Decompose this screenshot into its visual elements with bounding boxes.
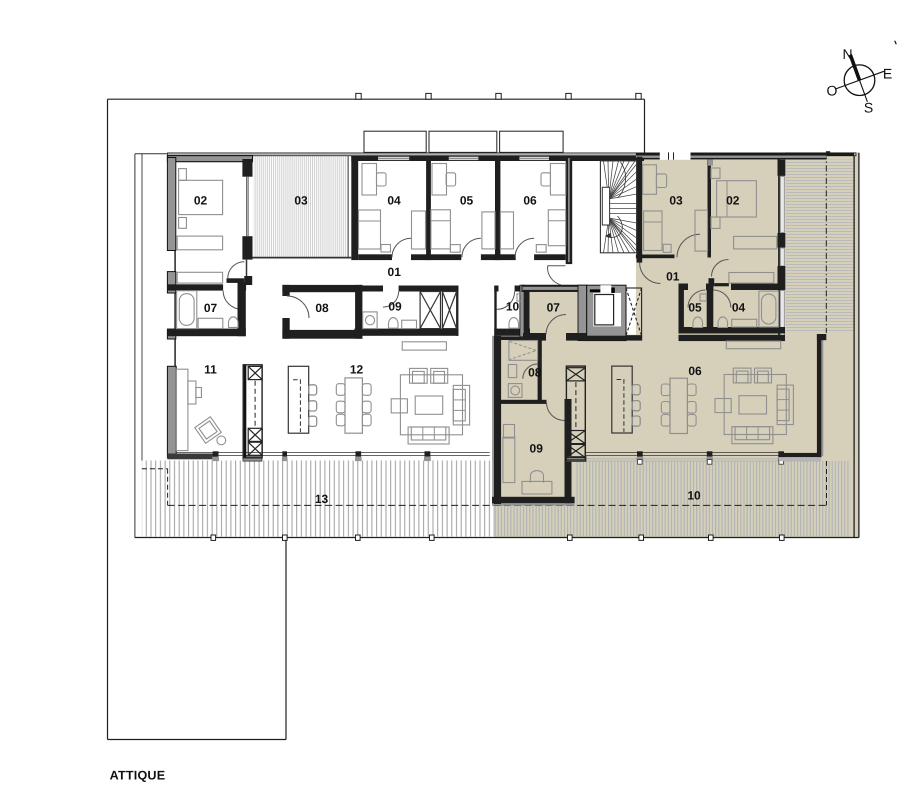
svg-text:04: 04 [732,301,746,315]
svg-text:04: 04 [387,194,401,208]
svg-text:05: 05 [460,194,474,208]
svg-text:03: 03 [669,194,683,208]
svg-text:06: 06 [688,364,702,378]
svg-text:08: 08 [315,301,329,315]
svg-text:01: 01 [666,269,680,283]
svg-text:02: 02 [194,194,208,208]
svg-text:10: 10 [687,489,701,503]
svg-text:02: 02 [726,194,740,208]
svg-text:03: 03 [294,194,308,208]
svg-text:E: E [883,66,892,82]
svg-text:05: 05 [688,301,702,315]
svg-text:07: 07 [547,301,561,315]
svg-text:01: 01 [388,265,402,279]
svg-text:07: 07 [204,301,218,315]
svg-text:N: N [842,46,852,62]
svg-text:09: 09 [388,300,402,314]
svg-text:09: 09 [530,442,544,456]
svg-text:08: 08 [528,366,542,380]
svg-text:O: O [827,83,838,99]
svg-text:11: 11 [204,363,217,377]
svg-text:S: S [864,100,873,116]
svg-text:10: 10 [506,300,520,314]
svg-text:12: 12 [350,363,364,377]
svg-text:13: 13 [315,492,329,506]
svg-text:06: 06 [523,194,537,208]
svg-text:ATTIQUE: ATTIQUE [110,768,166,782]
